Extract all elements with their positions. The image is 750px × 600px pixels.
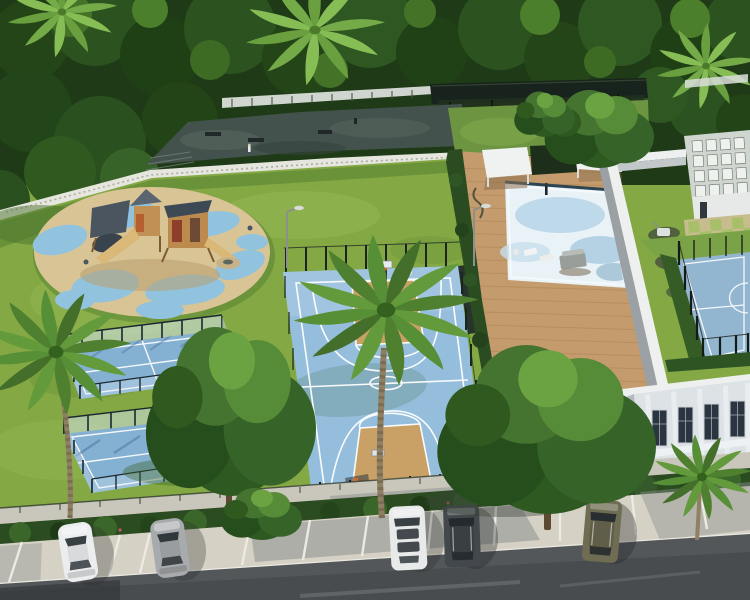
utility-door <box>700 202 707 219</box>
car-white-van <box>388 505 427 571</box>
rendering-canvas <box>0 0 750 600</box>
swimmer-figure <box>545 183 548 195</box>
car-olive-suv <box>581 499 622 564</box>
pedestrian-figure <box>354 118 357 124</box>
bench <box>318 130 332 134</box>
pedestrian-figure <box>248 144 251 152</box>
bench <box>205 132 221 136</box>
utility-building <box>684 130 750 226</box>
aerial-rendering <box>0 0 750 600</box>
gym-machine <box>657 228 670 236</box>
bench <box>248 138 264 142</box>
pergola-canopy <box>482 147 532 178</box>
